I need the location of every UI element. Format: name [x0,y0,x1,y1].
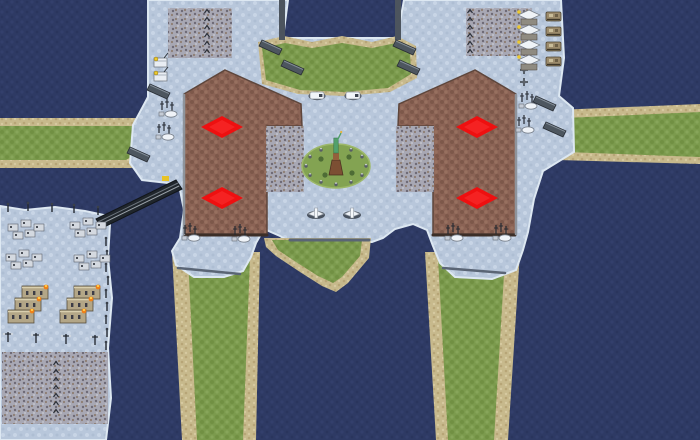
south-left-causeway-grass [188,258,250,440]
inlet-east-wall [395,0,401,40]
bridge-car [162,176,169,181]
left-plateau-rough-patch [266,126,304,192]
map-viewport[interactable] [0,0,700,440]
wrecked-vehicle [546,27,561,36]
inlet-west-wall [279,0,285,40]
east-causeway-grass [557,112,700,157]
south-right-causeway-grass [438,258,505,440]
right-plateau-rough-patch [396,126,434,192]
wrecked-vehicle [546,57,561,66]
west-causeway-grass [0,126,143,160]
wrecked-vehicle [546,42,561,51]
wrecked-vehicle [546,12,561,21]
top-left-rough-patch [168,8,232,58]
white-vehicle [345,92,362,100]
white-vehicle [309,92,326,100]
map-canvas[interactable] [0,0,700,440]
